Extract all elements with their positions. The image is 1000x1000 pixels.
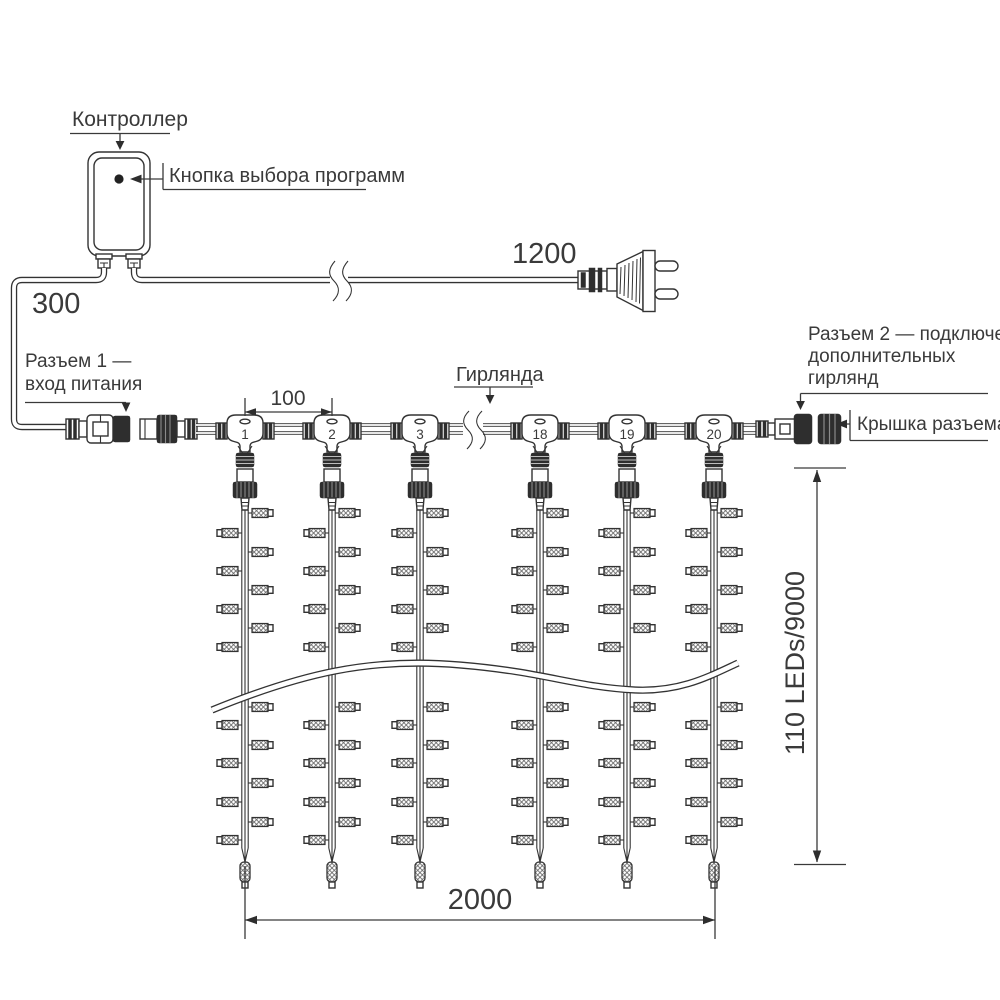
connector-2-extension — [756, 414, 812, 444]
t-connector-number: 1 — [230, 427, 260, 442]
plug-pin — [655, 289, 678, 299]
dimension-1200-label: 1200 — [512, 238, 577, 271]
mains-plug — [578, 251, 678, 312]
plug-pin — [655, 261, 678, 271]
controller-leader — [70, 134, 170, 151]
t-connector-number: 19 — [612, 427, 642, 442]
connector-cap — [818, 414, 841, 444]
connector2-label-line2: дополнительных — [808, 346, 1000, 368]
dimension-2000-label: 2000 — [430, 884, 530, 917]
connector1-label: Разъем 1 — вход питания — [25, 350, 142, 396]
diagram-canvas: Контроллер Кнопка выбора программ 300 12… — [0, 0, 1000, 1000]
t-connector-number: 18 — [525, 427, 555, 442]
diagram-line-art — [0, 0, 1000, 1000]
connector1-leader — [25, 403, 130, 413]
connector2-label-line3: гирлянд — [808, 368, 1000, 390]
connector1-label-line2: вход питания — [25, 373, 142, 396]
connector1-label-line1: Разъем 1 — — [25, 350, 142, 373]
connector-cap-label: Крышка разъема — [857, 414, 1000, 436]
vertical-dimension-label: 110 LEDs/9000 — [780, 548, 810, 778]
connector-1-power-input — [66, 415, 197, 443]
garland-label: Гирлянда — [456, 364, 544, 387]
controller-label: Контроллер — [72, 108, 188, 132]
cable-gland — [96, 254, 112, 268]
garland-main-cable — [196, 411, 757, 449]
dimension-300-label: 300 — [32, 288, 80, 321]
dimension-100-label: 100 — [263, 387, 313, 411]
cable-gland — [126, 254, 142, 268]
swag-cable — [212, 663, 738, 710]
t-connector-number: 3 — [405, 427, 435, 442]
program-button-label: Кнопка выбора программ — [169, 165, 405, 188]
connector2-label-line1: Разъем 2 — подключение — [808, 324, 1000, 346]
t-connector-number: 2 — [317, 427, 347, 442]
connector2-label: Разъем 2 — подключение дополнительных ги… — [808, 324, 1000, 390]
cable-break-symbol — [464, 411, 486, 449]
garland-leader — [454, 387, 533, 404]
connector2-leader — [796, 394, 988, 411]
controller-box — [88, 152, 150, 268]
t-connector-number: 20 — [699, 427, 729, 442]
program-select-button-dot — [114, 174, 123, 183]
